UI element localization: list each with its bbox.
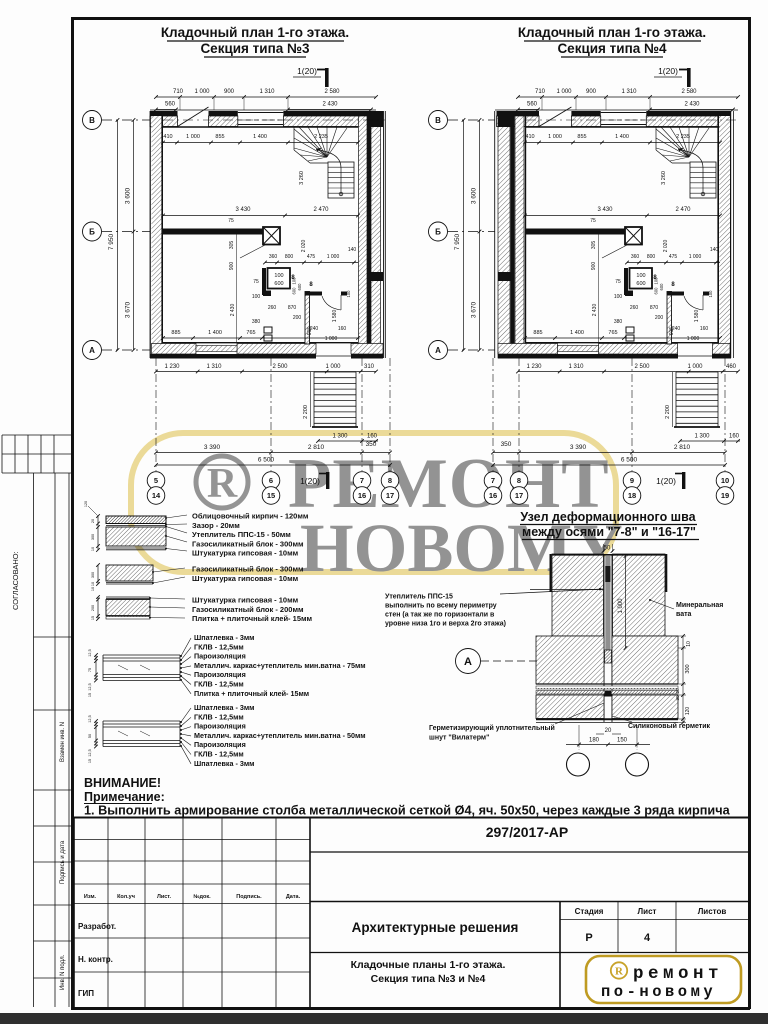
svg-text:600: 600 [274, 281, 283, 287]
svg-text:2 430: 2 430 [230, 304, 236, 317]
svg-text:855: 855 [577, 134, 586, 140]
svg-text:870: 870 [650, 305, 659, 311]
svg-text:12,5: 12,5 [88, 749, 92, 756]
svg-text:260: 260 [630, 305, 639, 311]
svg-text:1 000: 1 000 [687, 336, 700, 342]
svg-text:6: 6 [269, 476, 273, 485]
svg-text:75: 75 [253, 279, 259, 285]
svg-text:1 310: 1 310 [259, 89, 275, 95]
svg-text:2 430: 2 430 [592, 304, 598, 317]
svg-text:1 000: 1 000 [618, 598, 624, 614]
svg-text:СОГЛАСОВАНО:: СОГЛАСОВАНО: [11, 551, 20, 610]
svg-text:10: 10 [91, 587, 95, 591]
svg-text:Газосиликатный блок - 300мм: Газосиликатный блок - 300мм [192, 539, 304, 548]
svg-text:Подпись и дата: Подпись и дата [60, 840, 66, 884]
svg-text:20: 20 [605, 728, 612, 734]
svg-text:7 950: 7 950 [108, 233, 115, 250]
svg-text:1 000: 1 000 [327, 254, 340, 260]
svg-text:Пароизоляция: Пароизоляция [194, 652, 246, 661]
svg-text:2 020: 2 020 [301, 240, 307, 253]
svg-text:900: 900 [229, 262, 235, 271]
svg-text:12,5: 12,5 [88, 683, 92, 690]
svg-text:2 470: 2 470 [313, 207, 329, 213]
svg-text:Секция типа №3: Секция типа №3 [200, 41, 310, 56]
svg-text:ГКЛВ - 12,5мм: ГКЛВ - 12,5мм [194, 642, 244, 651]
svg-text:12,5: 12,5 [88, 649, 92, 656]
svg-text:150: 150 [617, 738, 628, 744]
svg-text:выполнить по всему периметру: выполнить по всему периметру [385, 603, 497, 610]
svg-text:3 430: 3 430 [235, 207, 251, 213]
svg-text:15: 15 [267, 491, 275, 500]
svg-text:ГКЛВ - 12,5мм: ГКЛВ - 12,5мм [194, 750, 244, 759]
svg-text:1(20): 1(20) [656, 476, 676, 486]
svg-text:75: 75 [590, 218, 596, 224]
svg-text:3 600: 3 600 [471, 187, 478, 204]
svg-text:Инв. N подл.: Инв. N подл. [60, 954, 66, 990]
svg-text:100: 100 [654, 277, 659, 285]
svg-text:R: R [207, 461, 238, 507]
svg-text:Газосиликатный блок - 200мм: Газосиликатный блок - 200мм [192, 605, 304, 614]
svg-text:8: 8 [388, 476, 392, 485]
svg-text:2 580: 2 580 [681, 89, 697, 95]
svg-text:Лист: Лист [638, 907, 657, 916]
svg-text:В: В [89, 116, 95, 125]
svg-text:Кол.уч: Кол.уч [117, 894, 135, 900]
svg-text:100: 100 [252, 294, 261, 300]
svg-text:Разработ.: Разработ. [78, 922, 116, 931]
svg-text:15: 15 [88, 693, 92, 697]
svg-text:2 500: 2 500 [272, 364, 288, 370]
svg-text:710: 710 [535, 89, 546, 95]
svg-text:140: 140 [348, 247, 357, 253]
svg-text:Утеплитель ППС-15 - 50мм: Утеплитель ППС-15 - 50мм [192, 530, 291, 539]
svg-text:15: 15 [88, 759, 92, 763]
svg-text:410: 410 [163, 134, 172, 140]
svg-text:1 230: 1 230 [526, 364, 542, 370]
svg-text:2 500: 2 500 [634, 364, 650, 370]
svg-text:140: 140 [710, 247, 719, 253]
svg-text:3 670: 3 670 [125, 301, 132, 318]
svg-text:между осями "7-8" и "16-17": между осями "7-8" и "16-17" [522, 525, 696, 539]
svg-text:Взамен инв. N: Взамен инв. N [60, 722, 66, 762]
svg-text:16: 16 [358, 491, 366, 500]
svg-text:475: 475 [669, 254, 678, 260]
svg-text:Дата.: Дата. [286, 894, 301, 900]
svg-text:2 200: 2 200 [303, 405, 309, 419]
svg-text:Кладочные планы 1-го этажа.: Кладочные планы 1-го этажа. [351, 959, 506, 971]
svg-text:Металлич. каркас+утеплитель ми: Металлич. каркас+утеплитель мин.ватна - … [194, 661, 366, 670]
svg-text:460: 460 [726, 364, 737, 370]
svg-text:3 600: 3 600 [125, 187, 132, 204]
svg-text:350: 350 [501, 441, 512, 448]
svg-text:300: 300 [91, 534, 95, 540]
svg-text:Силиконовый герметик: Силиконовый герметик [628, 722, 711, 730]
svg-text:600: 600 [297, 283, 302, 291]
svg-text:6 500: 6 500 [258, 457, 275, 464]
svg-text:уровне низа 1го и верха 2го эт: уровне низа 1го и верха 2го этажа) [385, 621, 506, 628]
svg-text:8: 8 [517, 476, 521, 485]
svg-text:Газосиликатный блок - 300мм: Газосиликатный блок - 300мм [192, 565, 304, 574]
svg-text:Шпатлевка - 3мм: Шпатлевка - 3мм [194, 633, 255, 642]
svg-text:Зазор - 20мм: Зазор - 20мм [192, 521, 240, 530]
svg-text:по-новому: по-новому [601, 983, 716, 1001]
svg-text:300: 300 [685, 664, 691, 673]
svg-text:560: 560 [527, 102, 538, 108]
svg-text:3 430: 3 430 [597, 207, 613, 213]
svg-text:Б: Б [89, 227, 95, 236]
svg-text:885: 885 [533, 330, 542, 336]
svg-text:200: 200 [91, 605, 95, 611]
svg-text:R: R [615, 966, 624, 978]
svg-text:800: 800 [647, 254, 656, 260]
svg-text:160: 160 [367, 434, 378, 440]
svg-text:310: 310 [364, 364, 375, 370]
svg-text:3 390: 3 390 [204, 444, 221, 451]
svg-text:1 000: 1 000 [556, 89, 572, 95]
svg-text:Штукатурка гипсовая - 10мм: Штукатурка гипсовая - 10мм [192, 574, 299, 583]
svg-text:1 000: 1 000 [548, 134, 562, 140]
svg-text:1 230: 1 230 [164, 364, 180, 370]
svg-text:14: 14 [152, 491, 161, 500]
svg-text:10: 10 [91, 547, 95, 551]
svg-text:Листов: Листов [698, 907, 727, 916]
svg-text:Герметизирующий уплотнительный: Герметизирующий уплотнительный [429, 724, 555, 732]
svg-text:2 580: 2 580 [324, 89, 340, 95]
svg-text:А: А [464, 656, 472, 668]
svg-text:30: 30 [675, 695, 680, 701]
svg-text:1 580: 1 580 [694, 310, 700, 323]
svg-text:600: 600 [292, 287, 297, 295]
svg-text:1 310: 1 310 [206, 364, 222, 370]
svg-text:Пароизоляция: Пароизоляция [194, 722, 246, 731]
svg-text:3 670: 3 670 [471, 301, 478, 318]
svg-text:1 300: 1 300 [332, 434, 348, 440]
svg-text:стен (а так же по горизонтали: стен (а так же по горизонтали в [385, 612, 495, 619]
svg-text:710: 710 [173, 89, 184, 95]
svg-text:1 400: 1 400 [570, 330, 584, 336]
svg-text:1. Выполнить армирование столб: 1. Выполнить армирование столба металлич… [84, 804, 731, 818]
svg-text:9: 9 [630, 476, 634, 485]
svg-text:160: 160 [700, 326, 709, 332]
svg-text:Шпатлевка - 3мм: Шпатлевка - 3мм [194, 703, 255, 712]
svg-text:Штукатурка гипсовая - 10мм: Штукатурка гипсовая - 10мм [192, 596, 299, 605]
svg-text:Штукатурка гипсовая - 10мм: Штукатурка гипсовая - 10мм [192, 549, 299, 558]
svg-text:2 430: 2 430 [322, 102, 338, 108]
svg-text:19: 19 [721, 491, 729, 500]
svg-text:305: 305 [229, 241, 235, 250]
svg-text:50: 50 [88, 734, 92, 738]
svg-text:380: 380 [252, 319, 261, 325]
svg-text:2 200: 2 200 [665, 405, 671, 419]
svg-text:100: 100 [614, 294, 623, 300]
svg-text:10: 10 [91, 582, 95, 586]
svg-text:Кладочный план 1-го этажа.: Кладочный план 1-го этажа. [161, 25, 349, 40]
svg-text:475: 475 [307, 254, 316, 260]
svg-text:600: 600 [659, 283, 664, 291]
svg-text:№док.: №док. [193, 894, 211, 900]
svg-text:1 000: 1 000 [325, 336, 338, 342]
svg-text:1 310: 1 310 [568, 364, 584, 370]
svg-text:Лист.: Лист. [157, 894, 172, 900]
svg-text:18: 18 [628, 491, 636, 500]
svg-text:2 020: 2 020 [663, 240, 669, 253]
svg-text:75: 75 [88, 668, 92, 672]
svg-text:20: 20 [675, 688, 680, 694]
svg-text:1 000: 1 000 [325, 364, 341, 370]
svg-text:Металлич. каркас+утеплитель ми: Металлич. каркас+утеплитель мин.ватна - … [194, 731, 366, 740]
svg-text:20: 20 [91, 519, 95, 523]
svg-text:765: 765 [246, 330, 255, 336]
svg-text:1 000: 1 000 [194, 89, 210, 95]
svg-text:2 470: 2 470 [675, 207, 691, 213]
svg-text:2 430: 2 430 [684, 102, 700, 108]
svg-text:50: 50 [604, 546, 611, 552]
svg-text:Облицовочный кирпич - 120мм: Облицовочный кирпич - 120мм [192, 512, 309, 521]
svg-text:5: 5 [154, 476, 158, 485]
svg-text:160: 160 [729, 434, 740, 440]
svg-text:6 500: 6 500 [621, 457, 638, 464]
svg-text:1 000: 1 000 [186, 134, 200, 140]
svg-text:Архитектурные решения: Архитектурные решения [352, 920, 519, 935]
svg-text:Изм.: Изм. [84, 894, 97, 900]
svg-text:Минеральная: Минеральная [676, 602, 723, 609]
svg-text:ГИП: ГИП [78, 989, 94, 998]
svg-text:ремонт: ремонт [633, 964, 723, 984]
svg-text:3 260: 3 260 [661, 171, 667, 185]
svg-text:200: 200 [293, 315, 302, 321]
svg-text:1(20): 1(20) [300, 476, 320, 486]
svg-text:15: 15 [91, 616, 95, 620]
svg-text:А: А [435, 346, 441, 355]
svg-text:7: 7 [491, 476, 495, 485]
svg-text:1 000: 1 000 [687, 364, 703, 370]
svg-text:1 400: 1 400 [253, 134, 267, 140]
svg-text:А: А [89, 346, 95, 355]
svg-text:10: 10 [721, 476, 729, 485]
svg-text:вата: вата [676, 611, 692, 618]
svg-text:Секция типа №3 и №4: Секция типа №3 и №4 [371, 973, 486, 985]
svg-text:120: 120 [84, 501, 88, 507]
svg-text:17: 17 [386, 491, 394, 500]
svg-text:1 310: 1 310 [621, 89, 637, 95]
svg-text:410: 410 [525, 134, 534, 140]
svg-text:75: 75 [228, 218, 234, 224]
svg-text:350: 350 [366, 441, 377, 448]
svg-text:1(20): 1(20) [658, 66, 678, 76]
svg-text:7: 7 [360, 476, 364, 485]
svg-text:1 000: 1 000 [689, 254, 702, 260]
svg-text:12,5: 12,5 [88, 715, 92, 722]
svg-text:Б: Б [435, 227, 441, 236]
svg-text:Примечание:: Примечание: [84, 790, 165, 804]
svg-text:900: 900 [591, 262, 597, 271]
svg-text:ГКЛВ - 12,5мм: ГКЛВ - 12,5мм [194, 712, 244, 721]
svg-text:380: 380 [614, 319, 623, 325]
svg-text:305: 305 [591, 241, 597, 250]
svg-text:260: 260 [268, 305, 277, 311]
svg-text:1 300: 1 300 [694, 434, 710, 440]
svg-text:75: 75 [615, 279, 621, 285]
svg-text:ГКЛВ - 12,5мм: ГКЛВ - 12,5мм [194, 680, 244, 689]
svg-text:2 810: 2 810 [308, 444, 325, 451]
svg-text:шнут "Вилатерм": шнут "Вилатерм" [429, 735, 489, 742]
svg-text:1(20): 1(20) [297, 66, 317, 76]
svg-text:2 810: 2 810 [674, 444, 691, 451]
svg-text:Секция типа №4: Секция типа №4 [557, 41, 667, 56]
svg-text:7 950: 7 950 [454, 233, 461, 250]
svg-text:В: В [435, 116, 441, 125]
svg-text:180: 180 [589, 738, 600, 744]
svg-text:297/2017-АР: 297/2017-АР [486, 824, 569, 840]
svg-text:800: 800 [285, 254, 294, 260]
svg-text:765: 765 [608, 330, 617, 336]
svg-text:Плитка + плиточный клей- 15мм: Плитка + плиточный клей- 15мм [194, 689, 309, 698]
svg-text:16: 16 [489, 491, 497, 500]
svg-text:100: 100 [292, 277, 297, 285]
svg-text:3 390: 3 390 [570, 444, 587, 451]
svg-text:100: 100 [274, 273, 283, 279]
svg-text:ВНИМАНИЕ!: ВНИМАНИЕ! [84, 776, 161, 790]
svg-text:600: 600 [636, 281, 645, 287]
svg-text:885: 885 [171, 330, 180, 336]
svg-text:Плитка + плиточный клей- 15мм: Плитка + плиточный клей- 15мм [192, 614, 313, 623]
svg-text:Пароизоляция: Пароизоляция [194, 740, 246, 749]
svg-text:240: 240 [672, 326, 681, 332]
svg-text:Стадия: Стадия [575, 907, 604, 916]
svg-text:120: 120 [685, 707, 691, 716]
svg-text:Шпатлевка - 3мм: Шпатлевка - 3мм [194, 759, 255, 768]
svg-text:560: 560 [165, 102, 176, 108]
svg-text:300: 300 [91, 572, 95, 578]
svg-text:Кладочный план 1-го этажа.: Кладочный план 1-го этажа. [518, 25, 706, 40]
svg-text:200: 200 [655, 315, 664, 321]
svg-text:1 580: 1 580 [332, 310, 338, 323]
svg-text:1 400: 1 400 [615, 134, 629, 140]
svg-text:855: 855 [215, 134, 224, 140]
svg-text:360: 360 [269, 254, 278, 260]
svg-text:17: 17 [515, 491, 523, 500]
svg-text:600: 600 [654, 287, 659, 295]
svg-text:360: 360 [631, 254, 640, 260]
svg-text:240: 240 [310, 326, 319, 332]
svg-text:Подпись.: Подпись. [236, 894, 262, 900]
svg-text:4: 4 [644, 932, 651, 944]
svg-text:3 260: 3 260 [299, 171, 305, 185]
svg-text:1 400: 1 400 [208, 330, 222, 336]
svg-text:Р: Р [585, 932, 592, 944]
svg-text:870: 870 [288, 305, 297, 311]
svg-text:10: 10 [686, 641, 692, 647]
svg-text:Пароизоляция: Пароизоляция [194, 670, 246, 679]
svg-text:Узел деформационного шва: Узел деформационного шва [520, 510, 696, 524]
svg-text:Н. контр.: Н. контр. [78, 955, 113, 964]
svg-text:100: 100 [636, 273, 645, 279]
svg-text:160: 160 [338, 326, 347, 332]
svg-text:Утеплитель ППС-15: Утеплитель ППС-15 [385, 594, 453, 601]
svg-text:900: 900 [586, 89, 597, 95]
svg-text:900: 900 [224, 89, 235, 95]
